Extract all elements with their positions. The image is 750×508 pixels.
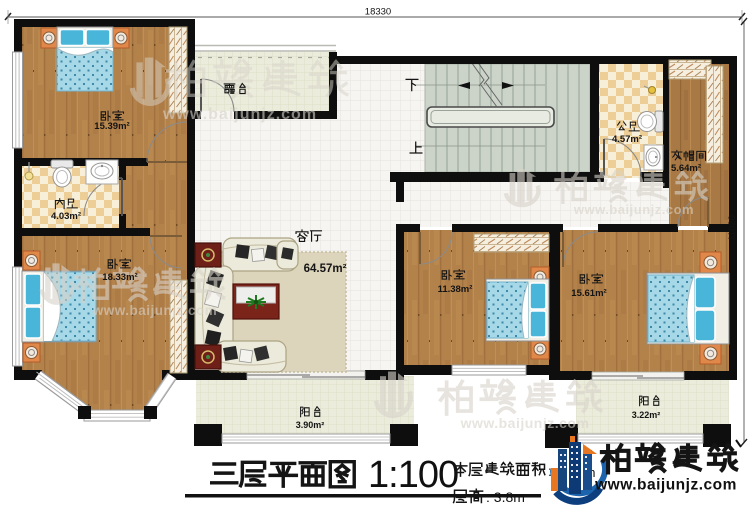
svg-text:5.64m²: 5.64m² [671,163,701,174]
svg-text:18330: 18330 [365,7,391,18]
svg-text:18.33m²: 18.33m² [102,272,137,283]
svg-text:11020: 11020 [727,215,738,241]
svg-text:11.38m²: 11.38m² [438,284,473,295]
svg-text:3.90m²: 3.90m² [296,420,325,430]
svg-text:www.baijunjz.com: www.baijunjz.com [460,415,590,431]
svg-text:15.39m²: 15.39m² [94,121,129,132]
svg-text:1:100: 1:100 [368,454,458,496]
svg-text:www.baijunjz.com: www.baijunjz.com [162,106,317,123]
svg-text:15.61m²: 15.61m² [571,288,606,299]
svg-text:www.baijunjz.com: www.baijunjz.com [594,477,737,494]
svg-text:4.57m²: 4.57m² [612,134,642,145]
svg-text:www.baijunjz.com: www.baijunjz.com [573,202,694,217]
svg-text:www.baijunjz.com: www.baijunjz.com [92,303,218,318]
svg-text:64.57m²: 64.57m² [304,263,347,275]
svg-text:3.22m²: 3.22m² [632,410,661,420]
svg-text:: 3.8m: : 3.8m [486,489,525,505]
svg-text:4.03m²: 4.03m² [51,211,81,222]
